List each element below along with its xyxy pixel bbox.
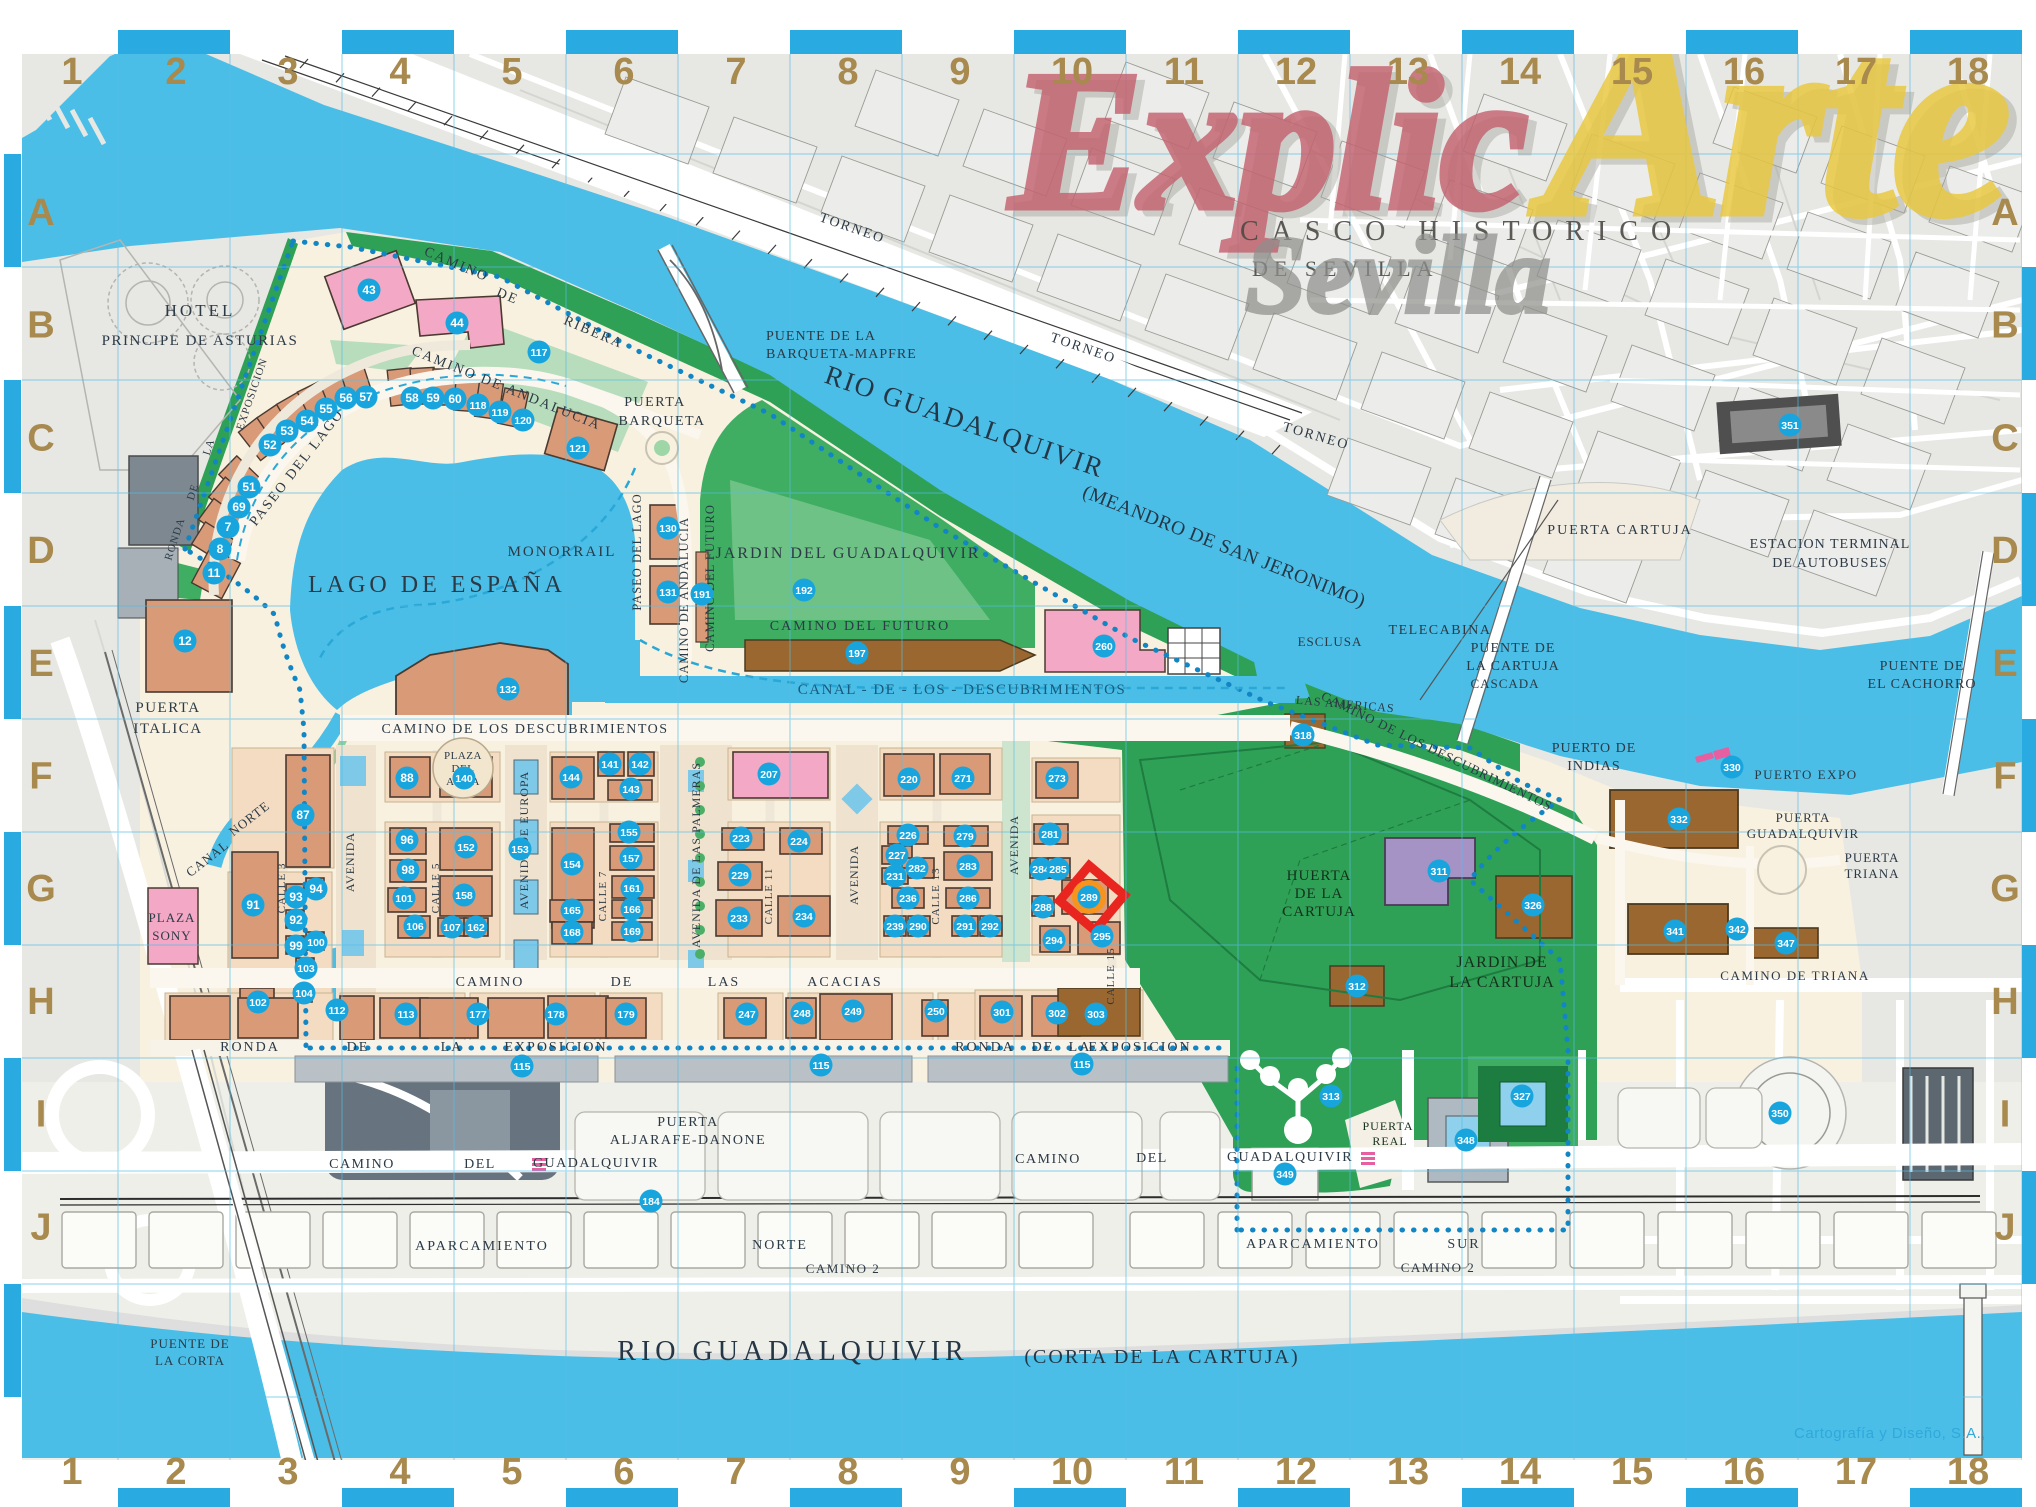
svg-text:152: 152 [457,842,475,854]
svg-text:HUERTA: HUERTA [1287,868,1352,884]
svg-text:44: 44 [450,316,464,330]
svg-text:CAMINO: CAMINO [1015,1152,1081,1167]
svg-text:CAMINO 2: CAMINO 2 [1401,1260,1475,1275]
svg-text:CASCADA: CASCADA [1470,676,1539,691]
svg-text:247: 247 [738,1009,756,1021]
svg-text:143: 143 [622,784,640,796]
svg-text:H: H [27,981,54,1023]
svg-text:9: 9 [949,51,970,93]
svg-text:AVENIDA: AVENIDA [1007,815,1021,875]
svg-text:43: 43 [362,283,376,297]
svg-text:347: 347 [1777,938,1795,950]
svg-text:GUADALQUIVIR: GUADALQUIVIR [1227,1150,1353,1165]
svg-text:CALLE 13: CALLE 13 [930,867,942,924]
svg-text:DE: DE [611,975,634,990]
svg-text:349: 349 [1276,1169,1294,1181]
svg-text:DE: DE [347,1040,370,1055]
svg-text:12: 12 [1275,51,1317,93]
svg-text:117: 117 [531,347,548,359]
svg-text:115: 115 [1074,1059,1091,1071]
svg-text:281: 281 [1041,829,1059,841]
svg-text:291: 291 [956,921,974,933]
svg-text:192: 192 [795,585,813,597]
svg-text:TRIANA: TRIANA [1844,866,1899,881]
svg-text:SUR: SUR [1447,1237,1480,1252]
svg-text:CAMINO DEL FUTURO: CAMINO DEL FUTURO [770,619,950,634]
svg-text:290: 290 [909,921,927,933]
svg-text:224: 224 [790,836,808,848]
svg-text:154: 154 [563,859,581,871]
svg-text:APARCAMIENTO: APARCAMIENTO [415,1239,549,1254]
svg-text:55: 55 [319,402,333,416]
svg-text:229: 229 [731,870,749,882]
svg-text:144: 144 [562,772,580,784]
svg-text:279: 279 [956,831,974,843]
svg-text:CAMINO DEL FUTURO: CAMINO DEL FUTURO [703,504,717,652]
svg-text:EL CACHORRO: EL CACHORRO [1868,677,1977,692]
svg-text:161: 161 [623,883,641,895]
svg-text:B: B [27,305,54,347]
svg-text:MONORRAIL: MONORRAIL [508,544,617,560]
svg-text:9: 9 [949,1451,970,1493]
svg-text:NORTE: NORTE [752,1238,808,1253]
svg-text:312: 312 [1348,981,1366,993]
svg-text:EXPOSICION: EXPOSICION [1088,1040,1191,1055]
svg-text:17: 17 [1835,1451,1877,1493]
svg-text:PLAZA: PLAZA [149,910,196,925]
svg-text:LA CORTA: LA CORTA [155,1353,225,1368]
svg-text:RONDA: RONDA [955,1040,1015,1055]
svg-text:69: 69 [232,500,246,514]
svg-text:INDIAS: INDIAS [1567,759,1620,774]
svg-text:169: 169 [623,926,641,938]
svg-text:PUERTO DE: PUERTO DE [1552,741,1637,756]
svg-text:12: 12 [178,634,192,648]
svg-text:A: A [1991,192,2018,234]
svg-text:ESTACION TERMINAL: ESTACION TERMINAL [1750,537,1911,552]
svg-text:96: 96 [400,833,414,847]
svg-text:E: E [1992,643,2017,685]
svg-text:87: 87 [296,808,310,822]
svg-text:104: 104 [295,988,313,1000]
svg-text:F: F [1993,756,2016,798]
svg-text:223: 223 [732,833,750,845]
svg-text:94: 94 [309,882,323,896]
svg-text:14: 14 [1499,1451,1541,1493]
svg-text:106: 106 [406,921,424,933]
svg-text:318: 318 [1294,730,1312,742]
svg-text:273: 273 [1048,773,1066,785]
svg-text:AVENIDA DE LAS PALMERAS: AVENIDA DE LAS PALMERAS [689,762,703,948]
svg-text:4: 4 [389,1451,410,1493]
svg-text:56: 56 [339,391,353,405]
svg-text:AVENIDA: AVENIDA [343,832,357,892]
svg-text:ALJARAFE-DANONE: ALJARAFE-DANONE [610,1133,766,1148]
svg-text:PUENTE DE: PUENTE DE [150,1336,229,1351]
svg-text:51: 51 [242,480,256,494]
svg-text:8: 8 [837,1451,858,1493]
svg-text:289: 289 [1080,892,1098,904]
svg-text:7: 7 [225,520,232,534]
svg-text:TELECABINA: TELECABINA [1389,623,1492,638]
svg-text:CARTUJA: CARTUJA [1282,904,1356,920]
svg-text:C: C [1991,417,2018,459]
svg-text:HOTEL: HOTEL [165,301,236,320]
svg-text:LA CARTUJA: LA CARTUJA [1466,659,1560,674]
svg-text:(CORTA DE LA CARTUJA): (CORTA DE LA CARTUJA) [1024,1346,1299,1368]
svg-text:Sevilla: Sevilla [1245,214,1551,336]
svg-text:88: 88 [400,771,414,785]
svg-text:282: 282 [908,863,926,875]
svg-text:249: 249 [844,1006,862,1018]
svg-text:LAS: LAS [708,975,740,990]
svg-text:3: 3 [277,51,298,93]
svg-text:RONDA: RONDA [220,1040,280,1055]
svg-text:PUENTE DE: PUENTE DE [1471,641,1556,656]
svg-text:11: 11 [208,566,221,580]
svg-text:C: C [27,417,54,459]
svg-text:PUERTA: PUERTA [1845,850,1900,865]
svg-text:102: 102 [249,997,267,1009]
svg-text:CAMINO DE TRIANA: CAMINO DE TRIANA [1720,968,1869,983]
svg-text:157: 157 [622,853,640,865]
svg-text:18: 18 [1947,1451,1989,1493]
svg-text:53: 53 [280,424,294,438]
svg-text:91: 91 [246,898,260,912]
svg-text:52: 52 [263,438,277,452]
svg-text:178: 178 [547,1009,565,1021]
svg-text:342: 342 [1728,924,1746,936]
svg-text:CALLE 3: CALLE 3 [276,863,288,914]
svg-text:57: 57 [359,390,373,404]
svg-text:I: I [36,1094,47,1136]
svg-text:PASEO DEL LAGO: PASEO DEL LAGO [630,493,644,610]
svg-text:DEL: DEL [1136,1151,1168,1166]
svg-text:D: D [27,530,54,572]
svg-text:13: 13 [1387,51,1429,93]
svg-text:JARDIN DEL GUADALQUIVIR: JARDIN DEL GUADALQUIVIR [716,545,981,562]
svg-text:295: 295 [1093,931,1111,943]
svg-text:1: 1 [61,1451,82,1493]
svg-text:350: 350 [1771,1108,1789,1120]
svg-text:285: 285 [1049,864,1067,876]
svg-text:5: 5 [501,1451,522,1493]
svg-text:DE LA: DE LA [1295,886,1344,902]
svg-text:DE AUTOBUSES: DE AUTOBUSES [1772,556,1888,571]
svg-text:303: 303 [1087,1009,1105,1021]
svg-text:10: 10 [1051,1451,1093,1493]
svg-text:18: 18 [1947,51,1989,93]
svg-text:LAGO DE ESPAÑA: LAGO DE ESPAÑA [308,572,566,598]
svg-text:15: 15 [1611,1451,1653,1493]
svg-text:ESCLUSA: ESCLUSA [1298,634,1363,649]
svg-text:112: 112 [329,1005,346,1017]
svg-text:130: 130 [659,523,677,535]
svg-text:162: 162 [467,922,485,934]
svg-text:BARQUETA-MAPFRE: BARQUETA-MAPFRE [766,347,917,362]
svg-text:7: 7 [725,1451,746,1493]
svg-text:4: 4 [389,51,410,93]
svg-text:16: 16 [1723,51,1765,93]
svg-text:J: J [1994,1206,2015,1248]
svg-text:17: 17 [1835,51,1877,93]
svg-text:A: A [27,192,54,234]
svg-text:LA CARTUJA: LA CARTUJA [1449,974,1555,991]
svg-text:13: 13 [1387,1451,1429,1493]
svg-text:8: 8 [217,542,224,556]
svg-text:283: 283 [959,861,977,873]
svg-text:59: 59 [426,391,440,405]
svg-text:CAMINO: CAMINO [456,975,525,990]
svg-text:177: 177 [469,1009,487,1021]
svg-text:DE: DE [1032,1040,1055,1055]
svg-text:11: 11 [1164,1451,1204,1493]
svg-text:GUADALQUIVIR: GUADALQUIVIR [1747,826,1859,841]
svg-text:CALLE 7: CALLE 7 [597,871,609,922]
svg-text:2: 2 [165,51,186,93]
svg-text:113: 113 [398,1009,415,1021]
svg-text:CALLE 15: CALLE 15 [1105,947,1117,1004]
svg-text:H: H [1991,981,2018,1023]
svg-text:PUERTA: PUERTA [624,395,686,410]
svg-text:239: 239 [886,921,904,933]
svg-text:231: 231 [886,871,904,883]
svg-text:ACACIAS: ACACIAS [807,975,882,990]
svg-text:SONY: SONY [152,928,191,943]
svg-text:B: B [1991,305,2018,347]
svg-text:132: 132 [499,684,517,696]
svg-text:58: 58 [405,391,419,405]
svg-text:330: 330 [1723,762,1741,774]
svg-text:F: F [29,756,52,798]
svg-text:100: 100 [307,937,325,949]
svg-text:294: 294 [1045,935,1063,947]
svg-text:141: 141 [601,759,619,771]
svg-text:184: 184 [642,1196,660,1208]
svg-text:RIO GUADALQUIVIR: RIO GUADALQUIVIR [617,1336,968,1367]
svg-text:348: 348 [1457,1135,1475,1147]
svg-text:AVENIDA: AVENIDA [847,845,861,905]
svg-text:14: 14 [1499,51,1541,93]
svg-text:D: D [1991,530,2018,572]
svg-text:288: 288 [1034,902,1052,914]
svg-text:103: 103 [297,963,315,975]
svg-text:115: 115 [813,1060,830,1072]
svg-text:CAMINO 2: CAMINO 2 [806,1261,880,1276]
svg-text:165: 165 [563,905,581,917]
svg-text:PUERTA: PUERTA [1776,810,1831,825]
svg-text:6: 6 [613,1451,634,1493]
svg-text:166: 166 [623,904,641,916]
svg-text:G: G [26,868,56,910]
svg-text:168: 168 [563,927,581,939]
svg-text:197: 197 [848,648,866,660]
svg-text:234: 234 [795,911,813,923]
svg-text:327: 327 [1513,1091,1531,1103]
svg-text:CAMINO DE ANDALUCIA: CAMINO DE ANDALUCIA [677,517,691,683]
svg-text:BARQUETA: BARQUETA [618,414,705,429]
svg-text:302: 302 [1048,1008,1066,1020]
svg-text:101: 101 [395,893,413,905]
svg-text:PLAZA: PLAZA [444,750,482,762]
svg-text:3: 3 [277,1451,298,1493]
svg-text:CALLE 5: CALLE 5 [430,863,442,914]
svg-text:120: 120 [514,415,532,427]
svg-text:16: 16 [1723,1451,1765,1493]
svg-text:191: 191 [693,589,711,601]
svg-text:233: 233 [730,913,748,925]
svg-text:292: 292 [981,921,999,933]
svg-text:260: 260 [1095,641,1113,653]
svg-text:DEL: DEL [464,1157,496,1172]
svg-text:326: 326 [1524,900,1542,912]
svg-text:PUERTA: PUERTA [657,1115,719,1130]
svg-text:140: 140 [455,773,473,785]
svg-text:158: 158 [455,890,473,902]
svg-text:1: 1 [61,51,82,93]
svg-text:CAMINO: CAMINO [329,1157,395,1172]
svg-text:PUERTA CARTUJA: PUERTA CARTUJA [1547,523,1692,538]
svg-text:J: J [30,1206,51,1248]
svg-text:PUERTO EXPO: PUERTO EXPO [1754,767,1857,782]
svg-text:54: 54 [300,414,314,428]
svg-text:115: 115 [514,1061,531,1073]
svg-text:236: 236 [899,893,917,905]
svg-text:2: 2 [165,1451,186,1493]
svg-text:11: 11 [1164,51,1204,93]
svg-text:332: 332 [1670,814,1688,826]
svg-text:92: 92 [289,913,303,927]
svg-text:351: 351 [1781,420,1799,432]
svg-text:6: 6 [613,51,634,93]
svg-text:207: 207 [760,769,778,781]
svg-text:LA: LA [441,1040,464,1055]
svg-text:Cartografía y Diseño, S.A.,: Cartografía y Diseño, S.A., [1794,1425,1986,1442]
svg-text:121: 121 [569,443,587,455]
svg-text:301: 301 [993,1007,1011,1019]
svg-text:PUERTA: PUERTA [1363,1119,1414,1133]
svg-text:JARDIN DE: JARDIN DE [1456,954,1547,971]
svg-text:CAMINO DE LOS DESCUBRIMI: CAMINO DE LOS DESCUBRIMIENTOS [381,722,668,737]
svg-text:APARCAMIENTO: APARCAMIENTO [1246,1237,1380,1252]
svg-text:179: 179 [617,1009,635,1021]
svg-text:GUADALQUIVIR: GUADALQUIVIR [533,1156,659,1171]
svg-text:142: 142 [631,759,649,771]
svg-text:341: 341 [1666,926,1684,938]
svg-text:PUENTE DE LA: PUENTE DE LA [766,329,876,344]
svg-text:E: E [28,643,53,685]
svg-text:PRINCIPE DE ASTURIAS: PRINCIPE DE ASTURIAS [102,333,299,349]
svg-text:248: 248 [793,1008,811,1020]
svg-text:99: 99 [289,939,303,953]
svg-text:153: 153 [511,844,529,856]
svg-text:220: 220 [900,774,918,786]
svg-text:ITALICA: ITALICA [133,721,202,737]
svg-text:CALLE 11: CALLE 11 [763,868,775,925]
svg-text:15: 15 [1611,51,1653,93]
svg-text:REAL: REAL [1372,1134,1407,1148]
svg-text:12: 12 [1275,1451,1317,1493]
svg-text:CANAL - DE - LOS - DESCUBRIMIE: CANAL - DE - LOS - DESCUBRIMIENTOS [798,682,1127,698]
svg-text:5: 5 [501,51,522,93]
svg-text:271: 271 [954,773,972,785]
svg-text:EXPOSICION: EXPOSICION [504,1040,607,1055]
svg-text:60: 60 [448,392,462,406]
svg-text:155: 155 [620,827,638,839]
svg-text:98: 98 [401,863,415,877]
svg-text:227: 227 [888,850,906,862]
svg-text:119: 119 [492,407,509,419]
svg-text:PUENTE DE: PUENTE DE [1880,659,1965,674]
svg-text:311: 311 [1431,866,1448,878]
svg-text:7: 7 [725,51,746,93]
svg-text:PUERTA: PUERTA [135,700,200,716]
svg-text:313: 313 [1322,1091,1340,1103]
svg-text:286: 286 [959,893,977,905]
svg-text:G: G [1990,868,2020,910]
svg-text:93: 93 [289,890,303,904]
svg-text:8: 8 [837,51,858,93]
svg-text:118: 118 [470,400,487,412]
svg-text:131: 131 [659,587,677,599]
svg-text:I: I [2000,1094,2011,1136]
svg-text:107: 107 [443,922,461,934]
svg-text:250: 250 [927,1006,945,1018]
svg-text:10: 10 [1051,51,1093,93]
svg-text:226: 226 [899,830,917,842]
